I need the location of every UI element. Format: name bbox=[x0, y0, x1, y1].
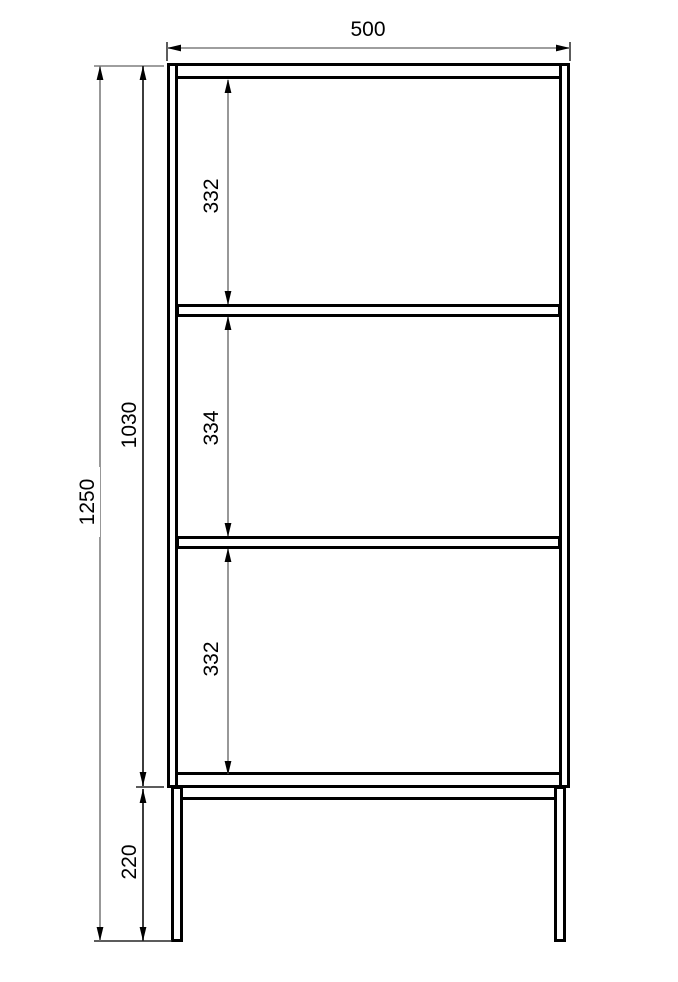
dimension-label-compartment-bottom: 332 bbox=[200, 624, 224, 694]
arrow-up-icon bbox=[140, 66, 147, 80]
arrow-down-icon bbox=[225, 761, 232, 775]
dimension-label-overall-height: 1250 bbox=[76, 467, 100, 537]
arrow-down-icon bbox=[97, 927, 104, 941]
arrow-up-icon bbox=[140, 789, 147, 803]
arrow-down-icon bbox=[225, 523, 232, 537]
dimension-annotations bbox=[0, 0, 678, 982]
arrow-left-icon bbox=[167, 45, 181, 52]
arrow-up-icon bbox=[225, 548, 232, 562]
dimension-label-leg-height: 220 bbox=[118, 827, 142, 897]
dimension-label-overall-width: 500 bbox=[333, 18, 403, 42]
arrow-down-icon bbox=[140, 772, 147, 786]
arrow-down-icon bbox=[225, 291, 232, 305]
arrow-up-icon bbox=[225, 316, 232, 330]
dimension-label-compartment-top: 332 bbox=[200, 161, 224, 231]
arrow-right-icon bbox=[556, 45, 570, 52]
dimension-label-compartment-middle: 334 bbox=[200, 393, 224, 463]
dimension-label-body-height: 1030 bbox=[118, 390, 142, 460]
arrow-up-icon bbox=[97, 66, 104, 80]
technical-drawing-canvas: 500 1250 1030 220 332 334 332 bbox=[0, 0, 678, 982]
arrow-down-icon bbox=[140, 927, 147, 941]
arrow-up-icon bbox=[225, 79, 232, 93]
